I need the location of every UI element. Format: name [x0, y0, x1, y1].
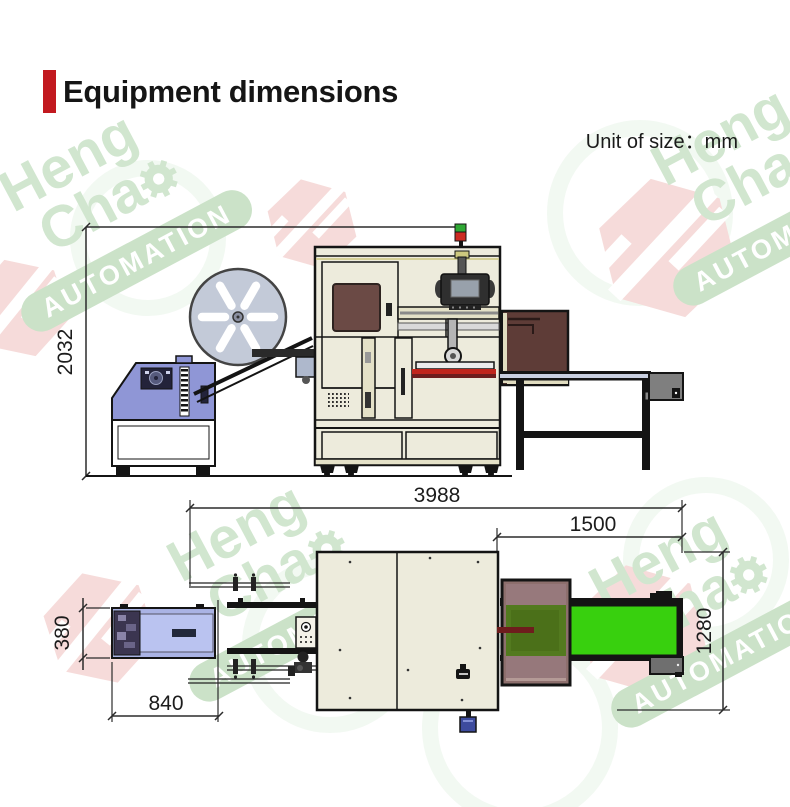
table-leg: [516, 380, 524, 470]
header: Equipment dimensions: [43, 70, 398, 113]
pendant-control: [296, 617, 316, 648]
dim-outfeed-length-label: 1500: [570, 513, 617, 536]
feeder-top: [112, 604, 215, 658]
feeder-side: [112, 356, 215, 476]
machine-top: [288, 552, 498, 732]
green-lamp: [455, 224, 466, 232]
work-table: [416, 362, 494, 369]
unit-label: Unit of size：mm: [586, 125, 738, 154]
page-title: Equipment dimensions: [63, 74, 398, 110]
dim-feeder-length-label: 840: [148, 692, 183, 715]
red-lamp: [455, 232, 466, 241]
machine-side: [315, 224, 500, 477]
dim-total-length-label: 3988: [414, 484, 461, 507]
conveyor-belt: [567, 606, 677, 655]
signal-tower: [455, 224, 466, 248]
foot-pedal: [460, 717, 476, 732]
page: Heng Cha AUTOMATION 2032: [0, 0, 790, 807]
dim-feeder-width-label: 380: [51, 615, 74, 650]
door-handle: [386, 303, 392, 316]
enclosure-top: [497, 580, 570, 685]
dim-machine-height-label: 2032: [54, 329, 77, 376]
door-window: [333, 284, 380, 331]
accent-bar: [43, 70, 56, 113]
hmi-screen: [451, 280, 479, 297]
drawing-canvas: Heng Cha AUTOMATION 2032: [0, 0, 790, 807]
dim-machine-depth-label: 1280: [693, 608, 716, 655]
z-axis-arm: [448, 319, 457, 350]
